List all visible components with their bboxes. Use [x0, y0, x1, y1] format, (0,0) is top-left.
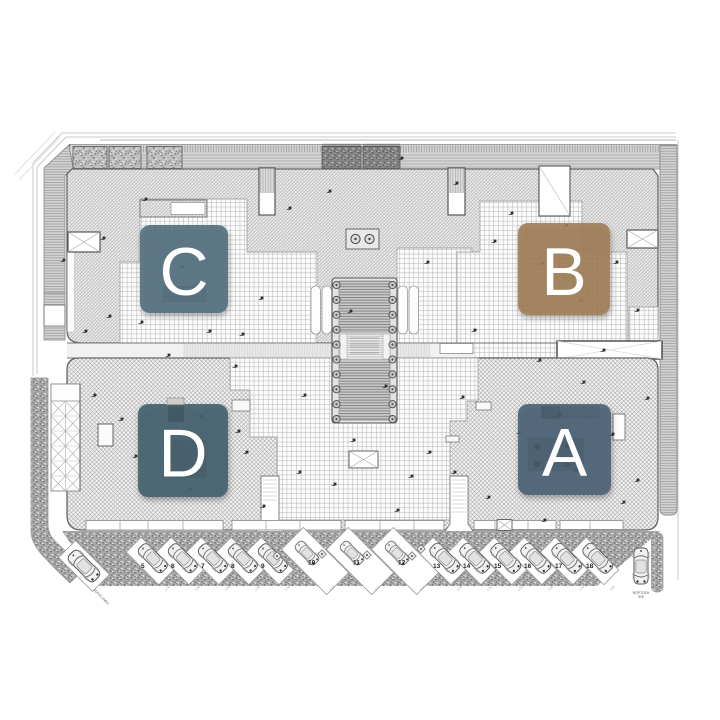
svg-text:B: B [541, 234, 586, 310]
svg-text:5: 5 [141, 563, 145, 570]
svg-text:10: 10 [308, 560, 316, 567]
svg-text:Φ/Ε: Φ/Ε [638, 595, 645, 599]
svg-text:C: C [159, 234, 208, 310]
svg-text:A: A [542, 415, 588, 491]
svg-text:7: 7 [201, 563, 205, 570]
svg-text:D: D [158, 416, 207, 492]
svg-text:16: 16 [524, 563, 532, 570]
svg-text:14: 14 [463, 563, 471, 570]
svg-text:8: 8 [231, 563, 235, 570]
svg-text:6: 6 [171, 563, 175, 570]
svg-text:18: 18 [586, 563, 594, 570]
svg-text:13: 13 [433, 563, 441, 570]
svg-text:15: 15 [494, 563, 502, 570]
svg-text:17: 17 [555, 563, 563, 570]
svg-text:12: 12 [398, 560, 406, 567]
svg-text:9: 9 [261, 563, 265, 570]
svg-text:11: 11 [353, 560, 360, 567]
